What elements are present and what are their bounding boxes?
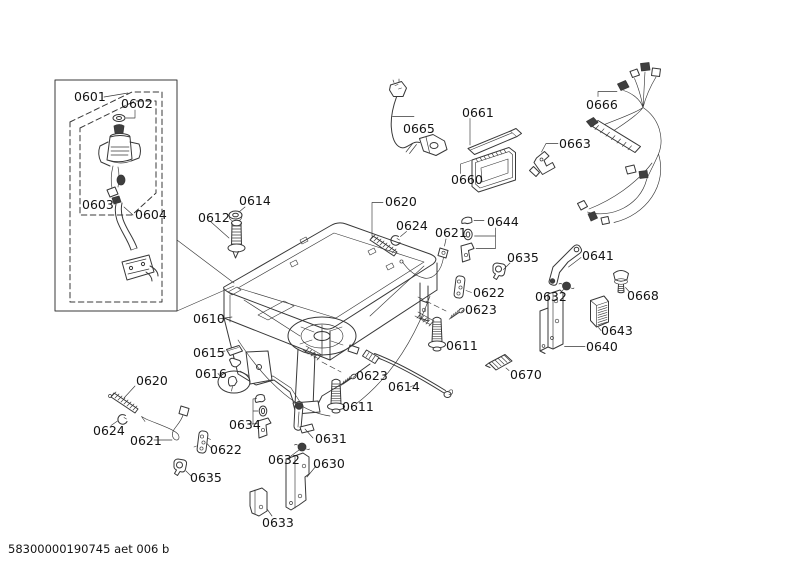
part-label-0643: 0643 <box>601 323 633 338</box>
part-label-0665: 0665 <box>403 121 435 136</box>
part-label-0631: 0631 <box>315 431 347 446</box>
part-0614-nut <box>229 207 245 221</box>
part-label-0602: 0602 <box>121 96 153 111</box>
part-label-0622-left: 0622 <box>210 442 242 457</box>
part-0602-washer <box>113 115 125 135</box>
part-label-0623-bottom: 0623 <box>356 368 388 383</box>
part-label-0630: 0630 <box>313 456 345 471</box>
aquastop-valve-body <box>99 134 141 205</box>
part-label-0612: 0612 <box>198 210 230 225</box>
leader-0622-middle <box>466 291 472 293</box>
part-label-0670: 0670 <box>510 367 542 382</box>
part-0623-screw-middle <box>449 307 465 319</box>
part-label-0666: 0666 <box>586 97 618 112</box>
part-0635-clamp-middle <box>493 263 510 280</box>
part-label-0620-left: 0620 <box>136 373 168 388</box>
part-0612-screw <box>211 220 245 258</box>
part-label-0663: 0663 <box>559 136 591 151</box>
parts-diagram-page: 0601 0602 0603 0604 0612 0614 0610 0615 … <box>0 0 800 566</box>
part-label-0661: 0661 <box>462 105 494 120</box>
part-label-0640: 0640 <box>586 339 618 354</box>
part-0670-rail <box>486 355 513 371</box>
part-label-0621-middle: 0621 <box>435 225 467 240</box>
part-label-0632-bottom: 0632 <box>268 452 300 467</box>
part-label-0621-left: 0621 <box>130 433 162 448</box>
leader-0666 <box>598 92 617 97</box>
leader-0620-left <box>124 386 135 398</box>
part-label-0616: 0616 <box>195 366 227 381</box>
part-label-0634: 0634 <box>229 417 261 432</box>
part-0622-latch-middle <box>454 276 472 299</box>
part-0633-bracket <box>250 488 272 516</box>
part-0620-spring-left <box>109 386 139 413</box>
part-label-0633: 0633 <box>262 515 294 530</box>
detail-box-leader-lines <box>177 240 234 311</box>
part-label-0603: 0603 <box>82 197 114 212</box>
part-0611-foot-screw-middle <box>429 317 446 351</box>
drawing-number-footer: 58300000190745 aet 006 b <box>8 542 169 556</box>
part-label-0644: 0644 <box>487 214 519 229</box>
part-label-0615: 0615 <box>193 345 225 360</box>
part-0663-bracket <box>530 144 559 177</box>
part-0601-aquastop-assembly <box>55 80 234 311</box>
part-label-0611-left: 0611 <box>342 399 374 414</box>
part-label-0641: 0641 <box>582 248 614 263</box>
leader-0621-middle <box>445 239 447 246</box>
part-label-0668: 0668 <box>627 288 659 303</box>
part-label-0614-top: 0614 <box>239 193 271 208</box>
part-label-0610: 0610 <box>193 311 225 326</box>
part-label-0624-left: 0624 <box>93 423 125 438</box>
part-0635-clamp-left <box>174 459 191 476</box>
part-label-0614-bottom: 0614 <box>388 379 420 394</box>
part-0665-power-cord <box>390 79 448 156</box>
part-label-0604: 0604 <box>135 207 167 222</box>
leader-0663 <box>542 144 559 153</box>
part-label-0622-middle: 0622 <box>473 285 505 300</box>
part-label-0601: 0601 <box>74 89 106 104</box>
pump-sump <box>288 317 359 355</box>
part-0622-latch-left <box>194 431 211 454</box>
part-0641-hinge-lever <box>549 245 582 285</box>
part-label-0624-middle: 0624 <box>396 218 428 233</box>
part-0661-strip <box>468 119 522 155</box>
leader-0620-middle <box>372 203 383 237</box>
part-label-0635-middle: 0635 <box>507 250 539 265</box>
part-label-0635-left: 0635 <box>190 470 222 485</box>
part-0603-connector <box>107 187 118 197</box>
part-label-0632-right: 0632 <box>535 289 567 304</box>
exploded-parts-diagram: 0601 0602 0603 0604 0612 0614 0610 0615 … <box>0 0 800 566</box>
leader-0670 <box>506 368 509 371</box>
part-label-0660: 0660 <box>451 172 483 187</box>
part-label-0611-middle: 0611 <box>446 338 478 353</box>
part-label-0623-middle: 0623 <box>465 302 497 317</box>
part-0623-screw-bottom <box>341 373 357 385</box>
part-label-0620-middle: 0620 <box>385 194 417 209</box>
